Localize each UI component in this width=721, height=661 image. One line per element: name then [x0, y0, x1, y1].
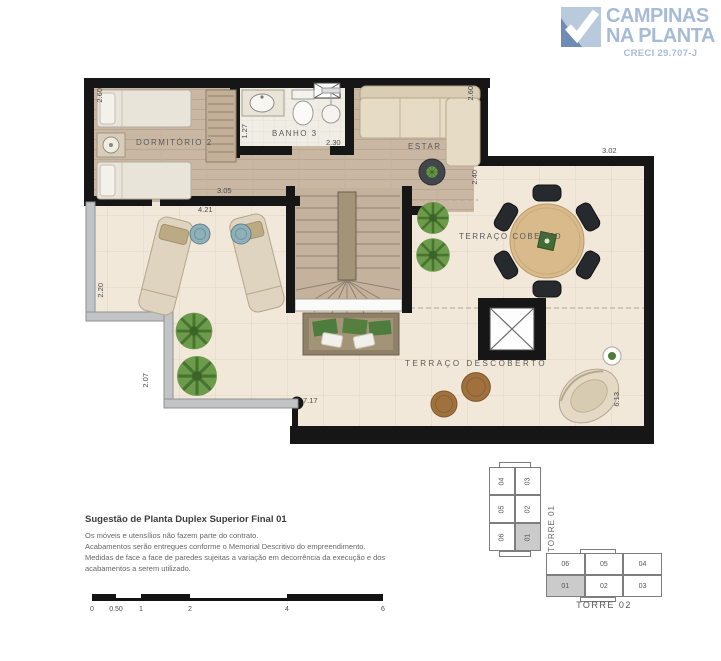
bed — [97, 90, 191, 127]
nightstand — [97, 133, 125, 157]
scale-label: 4 — [285, 606, 289, 613]
wardrobe — [206, 90, 236, 162]
torre02-unit-03: 03 — [623, 575, 662, 597]
dimension-2-40: 2.40 — [470, 170, 479, 185]
skylight-shaft — [478, 298, 546, 360]
logo-creci: CRECI 29.707-J — [606, 49, 715, 59]
torre02-label: TORRE 02 — [546, 600, 662, 610]
torre01-keyplan: 04 03 05 02 06 01 — [489, 467, 541, 551]
torre01-unit-04: 04 — [489, 467, 515, 495]
logo-check-icon — [560, 6, 602, 48]
logo-name-line1: CAMPINAS — [606, 6, 715, 26]
dimension-7-17: 7.17 — [303, 396, 318, 405]
dimension-3-05: 3.05 — [217, 186, 232, 195]
dimension-1-27: 1.27 — [240, 124, 249, 139]
bed — [97, 162, 191, 199]
garden-bench — [303, 313, 399, 355]
room-label-terraco-descoberto: TERRAÇO DESCOBERTO — [405, 359, 547, 368]
toilet — [292, 90, 314, 125]
scale-label: 6 — [381, 606, 385, 613]
side-table — [419, 159, 445, 185]
torre02-unit-04: 04 — [623, 553, 662, 575]
scale-label: 1 — [139, 606, 143, 613]
torre01-unit-03: 03 — [515, 467, 541, 495]
note-line: Os móveis e utensílios não fazem parte d… — [85, 530, 405, 541]
note-line: Acabamentos serão entregues conforme o M… — [85, 541, 405, 552]
room-label-terraco-coberto: TERRAÇO COBERTO — [459, 232, 562, 241]
pouf — [462, 373, 491, 402]
floorplan-page: DORMITÓRIO 2 BANHO 3 ESTAR TERRAÇO COBER… — [0, 0, 721, 661]
logo-name-line2: NA PLANTA — [606, 26, 715, 46]
dimension-2-07: 2.07 — [141, 373, 150, 388]
torre01-unit-01-highlighted: 01 — [515, 523, 541, 551]
bathroom-vanity — [242, 90, 284, 116]
dimension-2-60-right: 2.60 — [466, 86, 475, 101]
dimension-2-60-left: 2.60 — [95, 88, 104, 103]
dimension-2-20: 2.20 — [96, 283, 105, 298]
torre02-unit-06: 06 — [546, 553, 585, 575]
dimension-6-13: 6.13 — [612, 392, 621, 407]
staircase — [294, 188, 402, 313]
pouf — [431, 391, 457, 417]
room-label-dormitorio2: DORMITÓRIO 2 — [136, 138, 213, 147]
plant-icon — [177, 356, 217, 396]
room-label-banho3: BANHO 3 — [272, 129, 318, 138]
room-label-estar: ESTAR — [408, 142, 442, 151]
torre01-unit-06: 06 — [489, 523, 515, 551]
notes-block: Sugestão de Planta Duplex Superior Final… — [85, 514, 405, 574]
torre02-unit-01-highlighted: 01 — [546, 575, 585, 597]
torre01-unit-02: 02 — [515, 495, 541, 523]
plant-icon — [416, 238, 450, 272]
dimension-4-21: 4.21 — [198, 205, 213, 214]
plan-title: Sugestão de Planta Duplex Superior Final… — [85, 514, 405, 525]
scale-label: 2 — [188, 606, 192, 613]
torre01-label: TORRE 01 — [547, 470, 556, 552]
potted-plant-icon — [603, 347, 621, 365]
stair-landing — [295, 299, 402, 311]
scale-label: 0 — [90, 606, 94, 613]
torre02-keyplan: 06 05 04 01 02 03 — [546, 553, 662, 597]
note-line: acabamentos a serem utilizado. — [85, 563, 405, 574]
plant-icon — [417, 202, 449, 234]
scale-label: 0.50 — [109, 606, 123, 613]
note-line: Medidas de face a face de paredes sujeit… — [85, 552, 405, 563]
dimension-3-02: 3.02 — [602, 146, 617, 155]
torre02-unit-02: 02 — [585, 575, 624, 597]
logo: CAMPINAS NA PLANTA CRECI 29.707-J — [560, 6, 718, 59]
plant-icon — [176, 313, 213, 350]
torre02-unit-05: 05 — [585, 553, 624, 575]
torre01-bottom-cap — [499, 551, 531, 557]
dimension-2-30: 2.30 — [326, 138, 341, 147]
torre01-unit-05: 05 — [489, 495, 515, 523]
